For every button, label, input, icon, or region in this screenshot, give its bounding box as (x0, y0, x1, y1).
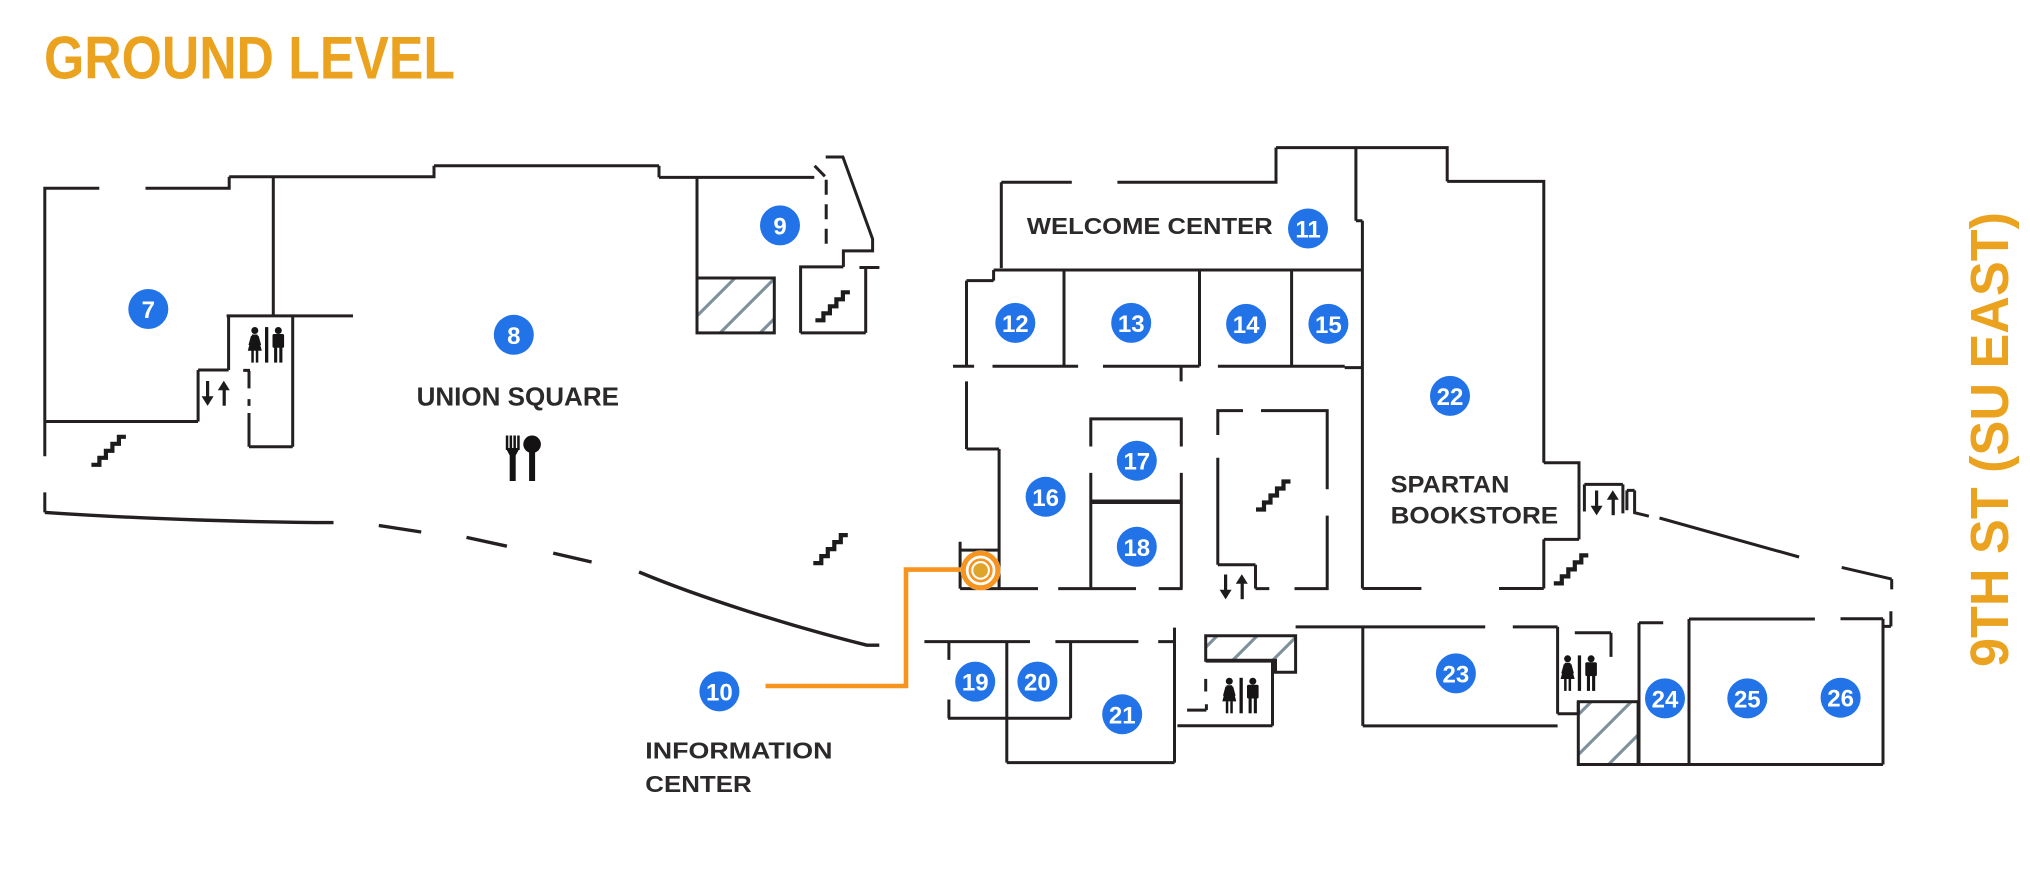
svg-text:7: 7 (142, 297, 155, 324)
svg-text:9: 9 (773, 213, 786, 240)
svg-text:18: 18 (1123, 535, 1150, 562)
svg-text:23: 23 (1443, 661, 1470, 688)
svg-text:10: 10 (706, 679, 733, 706)
svg-text:22: 22 (1437, 384, 1464, 411)
svg-text:16: 16 (1032, 485, 1059, 512)
svg-text:CENTER: CENTER (645, 771, 752, 797)
svg-text:13: 13 (1118, 311, 1145, 338)
svg-text:24: 24 (1652, 686, 1679, 713)
svg-text:25: 25 (1734, 686, 1761, 713)
svg-text:UNION SQUARE: UNION SQUARE (417, 382, 619, 412)
svg-text:WELCOME CENTER: WELCOME CENTER (1027, 213, 1273, 239)
svg-text:GROUND LEVEL: GROUND LEVEL (44, 25, 455, 92)
svg-text:17: 17 (1123, 449, 1150, 476)
svg-text:SPARTAN: SPARTAN (1391, 472, 1510, 499)
svg-text:9TH ST (SU EAST): 9TH ST (SU EAST) (1960, 212, 2020, 667)
svg-text:8: 8 (507, 323, 520, 350)
svg-text:15: 15 (1315, 312, 1342, 339)
svg-text:11: 11 (1295, 217, 1320, 244)
svg-text:14: 14 (1233, 312, 1260, 339)
svg-text:12: 12 (1002, 311, 1029, 338)
svg-text:BOOKSTORE: BOOKSTORE (1391, 503, 1559, 530)
svg-text:INFORMATION: INFORMATION (645, 737, 832, 763)
svg-text:26: 26 (1827, 686, 1854, 713)
svg-text:19: 19 (962, 670, 989, 697)
svg-text:21: 21 (1109, 702, 1136, 729)
svg-text:20: 20 (1024, 670, 1051, 697)
